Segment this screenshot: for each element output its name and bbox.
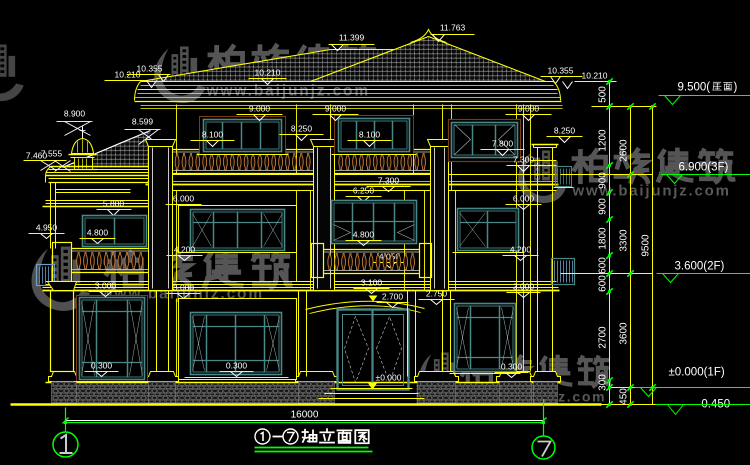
svg-text:4.800: 4.800 bbox=[353, 230, 375, 240]
svg-text:8.599: 8.599 bbox=[132, 117, 154, 127]
svg-text:900: 900 bbox=[598, 172, 609, 189]
svg-text:300: 300 bbox=[598, 374, 609, 391]
svg-text:10.210: 10.210 bbox=[255, 68, 281, 78]
svg-text:8.900: 8.900 bbox=[64, 109, 86, 119]
svg-text:2600: 2600 bbox=[619, 139, 630, 162]
svg-text:7.800: 7.800 bbox=[492, 139, 514, 149]
svg-text:9.500(: 9.500( bbox=[678, 82, 711, 94]
svg-text:9500: 9500 bbox=[641, 234, 652, 257]
svg-text:3.100: 3.100 bbox=[361, 278, 383, 288]
svg-text:9.000: 9.000 bbox=[518, 104, 540, 114]
svg-text:5.800: 5.800 bbox=[103, 199, 125, 209]
svg-text:6.900(3F): 6.900(3F) bbox=[679, 162, 729, 174]
svg-text:2700: 2700 bbox=[598, 326, 609, 349]
svg-text:450: 450 bbox=[619, 388, 630, 405]
svg-text:2.700: 2.700 bbox=[382, 292, 404, 302]
svg-text:600: 600 bbox=[598, 275, 609, 292]
svg-text:8.250: 8.250 bbox=[554, 126, 576, 136]
svg-text:3300: 3300 bbox=[619, 229, 630, 252]
svg-text:7.300: 7.300 bbox=[378, 176, 400, 186]
svg-text:8.250: 8.250 bbox=[291, 124, 313, 134]
svg-text:4.200: 4.200 bbox=[510, 245, 532, 255]
svg-text:www.baijunjz.com: www.baijunjz.com bbox=[206, 83, 371, 100]
svg-text:4.950: 4.950 bbox=[36, 223, 58, 233]
svg-text:3.000: 3.000 bbox=[513, 282, 535, 292]
svg-text:4.200: 4.200 bbox=[174, 245, 196, 255]
svg-text:11.399: 11.399 bbox=[339, 33, 365, 43]
svg-text:10.210: 10.210 bbox=[582, 71, 608, 81]
svg-text:16000: 16000 bbox=[291, 410, 319, 421]
svg-text:±0.000: ±0.000 bbox=[376, 373, 402, 383]
svg-text:7.460: 7.460 bbox=[26, 151, 48, 161]
svg-text:6.000: 6.000 bbox=[173, 194, 195, 204]
svg-text:3.000: 3.000 bbox=[173, 283, 195, 293]
svg-text:500: 500 bbox=[598, 86, 609, 103]
svg-text:www.baijunjz.com: www.baijunjz.com bbox=[572, 183, 731, 200]
svg-text:8.100: 8.100 bbox=[202, 130, 224, 140]
svg-text:3.000: 3.000 bbox=[95, 281, 117, 291]
svg-text:1800: 1800 bbox=[598, 227, 609, 250]
svg-text:0.300: 0.300 bbox=[501, 362, 523, 372]
svg-text:7.300: 7.300 bbox=[513, 155, 535, 165]
svg-text:9.000: 9.000 bbox=[249, 104, 271, 114]
svg-text:900: 900 bbox=[598, 198, 609, 215]
svg-text:10.355: 10.355 bbox=[137, 64, 163, 74]
svg-text:3600: 3600 bbox=[619, 322, 630, 345]
svg-text:±0.000(1F): ±0.000(1F) bbox=[669, 367, 725, 379]
svg-text:8.100: 8.100 bbox=[359, 130, 381, 140]
svg-text:0.300: 0.300 bbox=[91, 361, 113, 371]
svg-text:1200: 1200 bbox=[598, 129, 609, 152]
svg-text:6.250: 6.250 bbox=[353, 186, 375, 196]
svg-text:9.000: 9.000 bbox=[325, 104, 347, 114]
svg-text:10.355: 10.355 bbox=[548, 66, 574, 76]
svg-text:4.800: 4.800 bbox=[87, 228, 109, 238]
svg-text:11.763: 11.763 bbox=[440, 23, 466, 33]
svg-text:6.000: 6.000 bbox=[513, 194, 535, 204]
svg-text:600: 600 bbox=[598, 257, 609, 274]
svg-text:0.300: 0.300 bbox=[226, 361, 248, 371]
svg-text:3.600(2F): 3.600(2F) bbox=[675, 261, 725, 273]
svg-text:): ) bbox=[734, 82, 738, 94]
